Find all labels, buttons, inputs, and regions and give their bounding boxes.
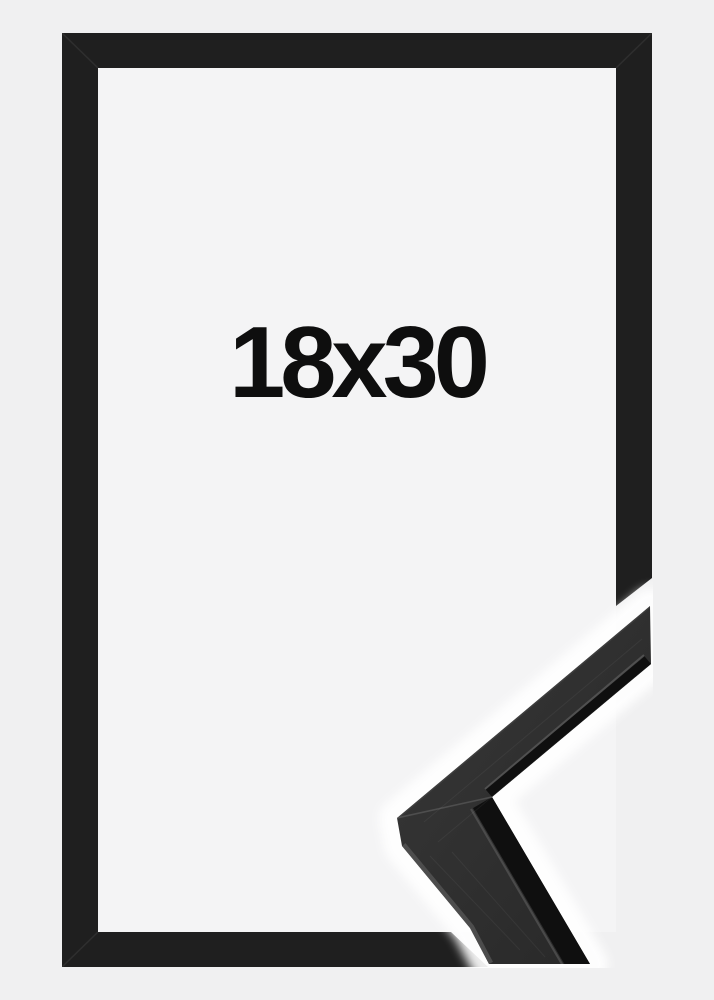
frame-illustration <box>0 0 714 1000</box>
product-image-frame: 18x30 <box>0 0 714 1000</box>
frame-opening <box>98 68 616 932</box>
size-label: 18x30 <box>0 296 714 430</box>
